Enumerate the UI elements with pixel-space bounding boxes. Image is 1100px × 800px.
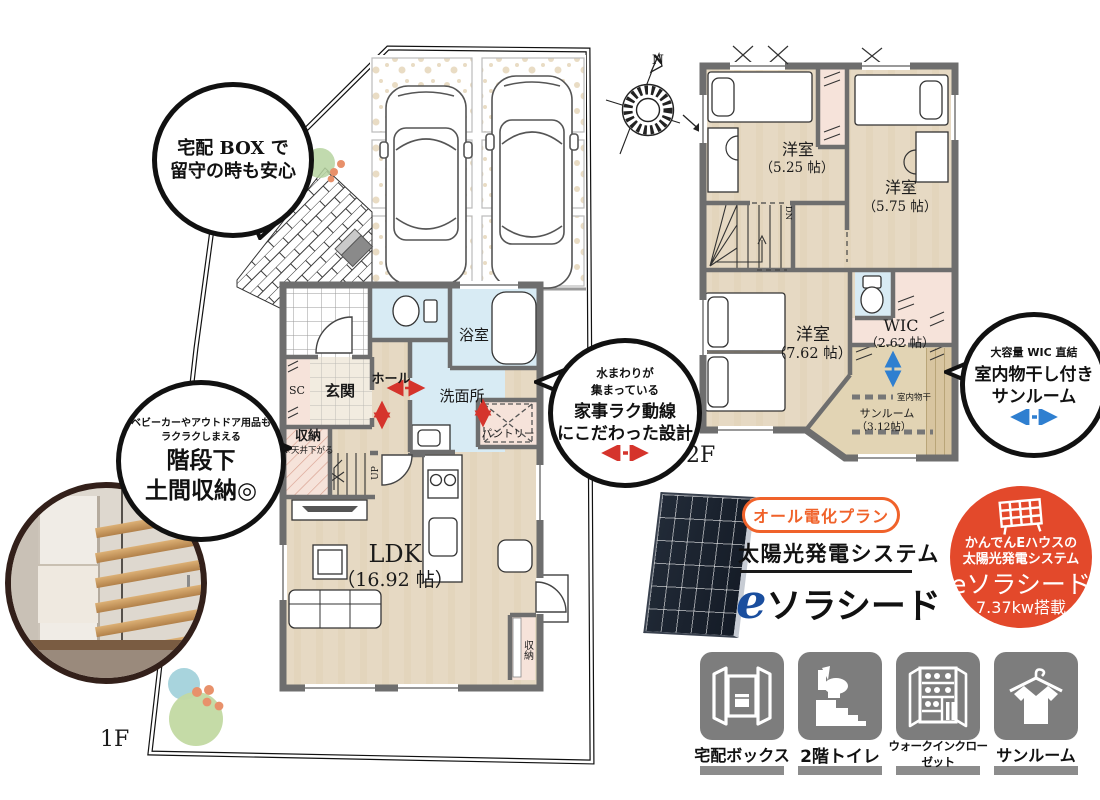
window	[279, 545, 287, 600]
room-label-sc: SC	[289, 384, 305, 397]
kanden-brand: eソラシード	[951, 571, 1091, 599]
room-label-sunroom: サンルーム	[860, 407, 915, 420]
window	[858, 454, 916, 462]
room-label-pantry: パントリー	[481, 428, 534, 440]
kanden-line1: かんでんEハウスの	[965, 536, 1077, 552]
divider	[740, 570, 912, 573]
window	[305, 684, 375, 692]
feature-underline	[798, 766, 882, 775]
feature-walk-in-closet: ウォークインクローゼット	[896, 652, 980, 775]
room-label-c: 洋室	[796, 325, 830, 345]
bubble-kaji-rakudousen: 水まわりが 集まっている 家事ラク動線 にこだわった設計	[548, 338, 702, 488]
stairs-toilet-icon	[798, 652, 882, 740]
shirt-hanger-icon	[994, 652, 1078, 740]
room-label-wic: WIC	[883, 316, 918, 335]
window	[460, 281, 518, 289]
window	[862, 62, 910, 70]
room-label-a: 洋室	[782, 140, 814, 159]
walk-in-closet-icon	[896, 652, 980, 740]
bubble-delivery-box: 宅配 BOX で 留守の時も安心	[152, 82, 314, 238]
bubble-line: 水まわりが	[596, 365, 654, 382]
room-label-ldk: LDK	[368, 540, 422, 568]
floor-plan-page: N	[0, 0, 1100, 800]
room-size-ldk: （16.92 帖）	[336, 569, 453, 591]
feature-label: サンルーム	[984, 744, 1088, 764]
e-solaseed-name: ソラシード	[767, 587, 941, 627]
bubble-line: 階段下	[167, 446, 236, 476]
e-solaseed-logo: eソラシード	[736, 574, 941, 630]
bubble-line: ラクラクしまえる	[161, 431, 241, 446]
bubble-line: 集まっている	[591, 382, 659, 399]
compass-icon: N	[606, 53, 704, 154]
stairs-dn-label: DN	[783, 206, 793, 221]
delivery-box-icon	[700, 652, 784, 740]
bubble-line: 宅配 BOX で	[177, 137, 288, 160]
feature-2f-toilet: 2階トイレ	[798, 652, 882, 775]
room-size-c: （7.62 帖）	[772, 345, 852, 362]
room-label-bath: 浴室	[459, 326, 489, 344]
room-label-b: 洋室	[885, 178, 917, 197]
feature-underline	[994, 766, 1078, 775]
window	[536, 465, 544, 520]
room-size-a: （5.25 帖）	[760, 160, 835, 176]
kanden-capacity: 7.37kw搭載	[976, 599, 1066, 617]
feature-sunroom: サンルーム	[994, 652, 1078, 775]
room-label-hall: ホール	[371, 372, 410, 387]
room-size-b: （5.75 帖）	[863, 199, 938, 215]
window	[699, 95, 707, 143]
kanden-line2: 太陽光発電システム	[963, 552, 1080, 568]
bubble-line: 家事ラク動線	[574, 401, 676, 423]
window	[699, 300, 707, 355]
e-solaseed-e: e	[736, 574, 767, 630]
bubble-sunroom: 大容量 WIC 直結 室内物干し付き サンルーム	[960, 312, 1100, 458]
window	[398, 684, 458, 692]
room-size-wic: （2.62 帖）	[865, 335, 934, 350]
solar-system-title: 太陽光発電システム	[738, 538, 940, 568]
floor-plan-2f: 洋室 （5.25 帖） 洋室 （5.75 帖） 洋室 （7.62 帖） WIC …	[686, 46, 959, 468]
window	[730, 62, 785, 70]
all-denka-badge: オール電化プラン	[742, 497, 900, 533]
drying-rod-label: 室内物干	[897, 392, 932, 403]
room-label-closet: 収納	[522, 640, 534, 661]
room-label-storage: 収納	[295, 428, 321, 444]
feature-label: ウォークインクローゼット	[886, 744, 990, 764]
feature-delivery-box: 宅配ボックス	[700, 652, 784, 775]
red-dashed-arrow-icon	[593, 445, 657, 461]
window	[718, 426, 773, 434]
window	[951, 95, 959, 140]
bubble-line: 留守の時も安心	[170, 160, 296, 183]
solar-panel-icon	[995, 498, 1047, 536]
bubble-doma-storage: ベビーカーやアウトドア用品も ラクラクしまえる 階段下 土間収納◎	[116, 380, 286, 542]
compass-n-label: N	[652, 53, 664, 68]
bubble-line: サンルーム	[992, 386, 1077, 408]
bubble-line: ベビーカーやアウトドア用品も	[131, 417, 271, 432]
room-label-washroom: 洗面所	[439, 387, 484, 405]
room-label-genkan: 玄関	[325, 382, 355, 400]
feature-label: 2階トイレ	[788, 744, 892, 764]
room-size-sunroom: （3.12帖）	[857, 420, 912, 433]
blue-dashed-arrow-icon	[1002, 409, 1066, 425]
feature-underline	[700, 766, 784, 775]
bubble-line: 土間収納◎	[145, 476, 257, 506]
feature-label: 宅配ボックス	[690, 744, 794, 764]
stairs-up-label: UP	[371, 466, 381, 480]
bubble-line: 大容量 WIC 直結	[991, 345, 1078, 361]
bubble-line: にこだわった設計	[557, 423, 693, 445]
kanden-solar-badge: かんでんEハウスの 太陽光発電システム eソラシード 7.37kw搭載	[950, 486, 1092, 628]
floor-tag-1f: 1F	[100, 727, 129, 752]
bubble-line: 室内物干し付き	[975, 364, 1094, 386]
